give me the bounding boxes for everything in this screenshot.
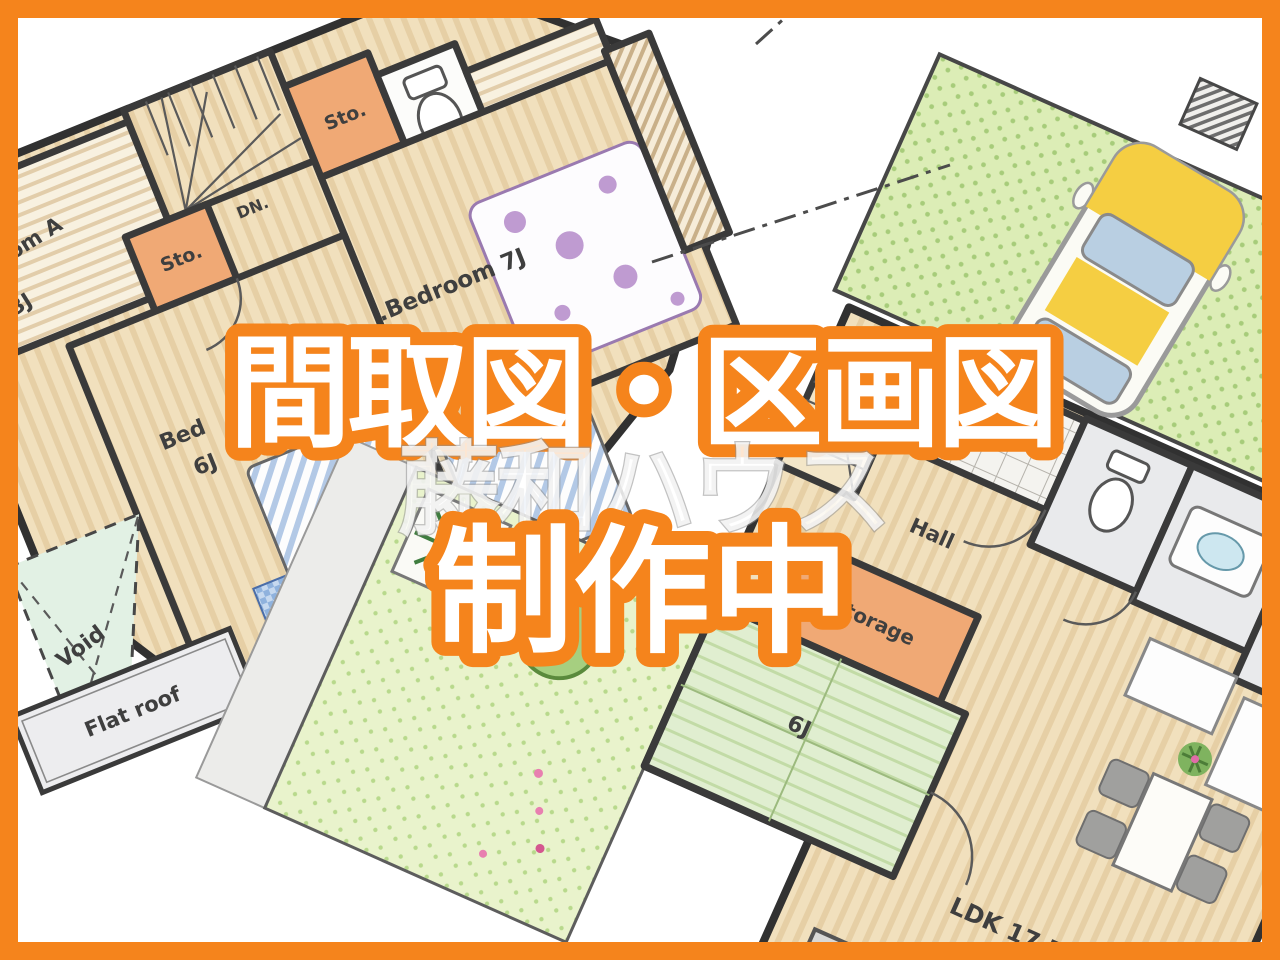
placeholder-image: om A 3J DN. Sto. Sto. W.I.C M.Be bbox=[0, 0, 1280, 960]
floorplan-scene: om A 3J DN. Sto. Sto. W.I.C M.Be bbox=[0, 0, 1280, 960]
title-line2: 制作中 bbox=[435, 512, 849, 673]
